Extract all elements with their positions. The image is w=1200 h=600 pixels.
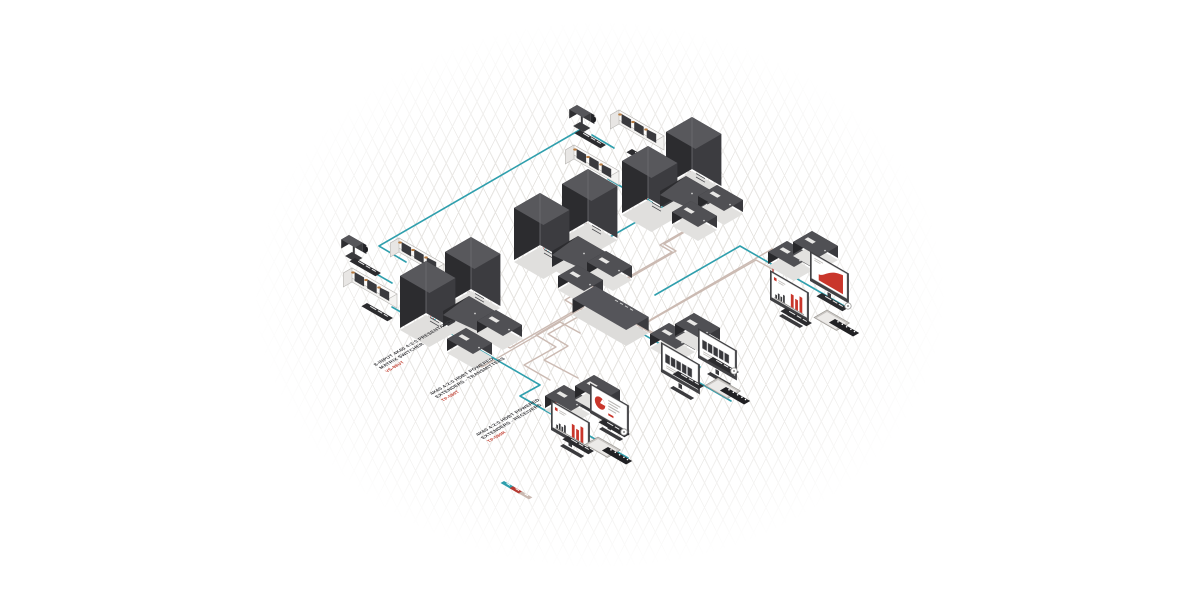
ptz-camera xyxy=(569,105,596,132)
cable-legend xyxy=(501,481,533,499)
right-display-zone xyxy=(768,231,859,337)
wall-rail xyxy=(610,110,664,150)
callout-marker xyxy=(731,368,737,374)
svg-text:4K60 4:2:0 HDBT POWERED: 4K60 4:2:0 HDBT POWERED xyxy=(429,357,497,396)
svg-text:EXTENDERS - RECEIVERS: EXTENDERS - RECEIVERS xyxy=(480,403,544,440)
video-cables xyxy=(456,204,818,416)
mid-display-zone xyxy=(650,313,750,405)
device-label xyxy=(574,130,606,148)
svg-text:4K60 4:2:0 HDBT POWERED: 4K60 4:2:0 HDBT POWERED xyxy=(475,398,543,437)
legend-hdbt-swatch xyxy=(519,491,533,499)
isometric-av-diagram: 8-INPUT 4K60 4:2:0 PRESENTATION MATRIX S… xyxy=(0,0,1200,600)
matrix-switcher xyxy=(573,286,649,346)
ptz-camera xyxy=(341,235,368,262)
device-label xyxy=(361,303,393,321)
wall-rail xyxy=(343,268,397,308)
bottom-display-zone xyxy=(545,375,632,465)
callout-marker xyxy=(845,303,851,309)
left-source-cluster xyxy=(341,235,522,368)
callout-marker xyxy=(621,429,627,435)
mid-source-cluster xyxy=(514,169,632,305)
diagram-canvas: 8-INPUT 4K60 4:2:0 PRESENTATION MATRIX S… xyxy=(0,0,1200,600)
annotation-receivers: 4K60 4:2:0 HDBT POWERED EXTENDERS - RECE… xyxy=(475,398,553,443)
